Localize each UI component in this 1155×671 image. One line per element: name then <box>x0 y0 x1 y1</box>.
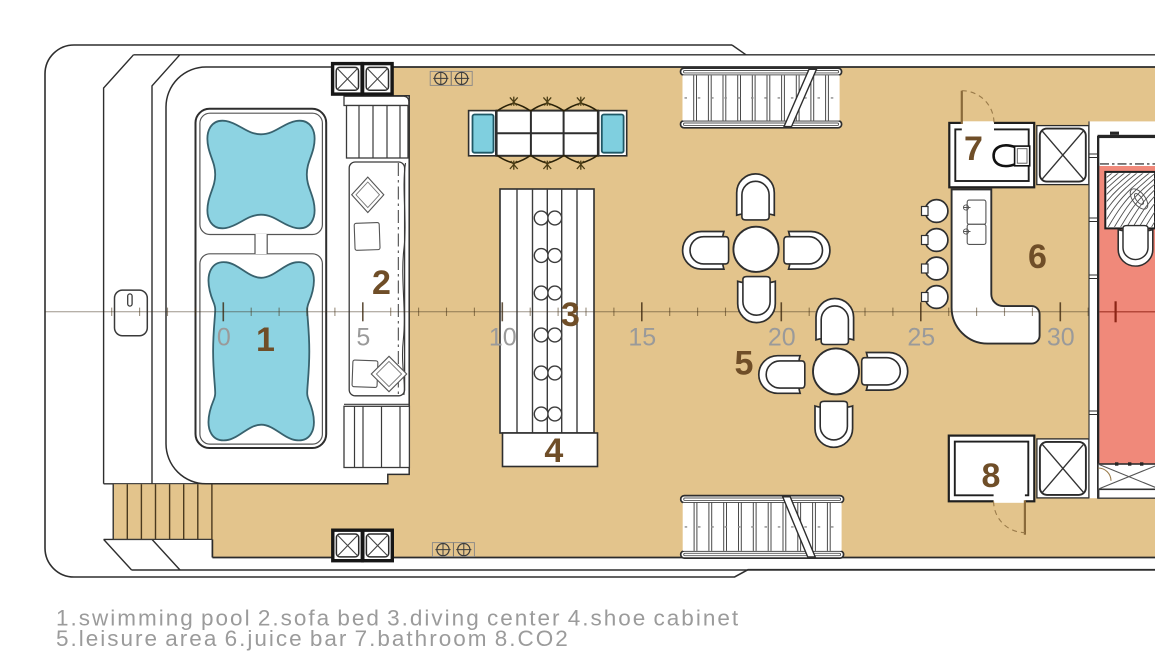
svg-text:7: 7 <box>964 130 983 168</box>
svg-text:2: 2 <box>372 264 391 302</box>
svg-text:20: 20 <box>768 324 796 352</box>
svg-text:10: 10 <box>489 324 517 352</box>
svg-text:15: 15 <box>628 324 656 352</box>
svg-text:30: 30 <box>1047 324 1075 352</box>
svg-text:0: 0 <box>217 324 231 352</box>
svg-text:5: 5 <box>735 345 754 383</box>
svg-text:3: 3 <box>561 296 580 334</box>
svg-text:6: 6 <box>1028 238 1047 276</box>
svg-text:5.leisure area 6.juice bar 7.b: 5.leisure area 6.juice bar 7.bathroom 8.… <box>56 626 570 651</box>
svg-text:25: 25 <box>907 324 935 352</box>
svg-text:1: 1 <box>256 321 275 359</box>
svg-text:5: 5 <box>356 324 370 352</box>
svg-text:4: 4 <box>544 432 563 470</box>
svg-text:8: 8 <box>982 457 1001 495</box>
